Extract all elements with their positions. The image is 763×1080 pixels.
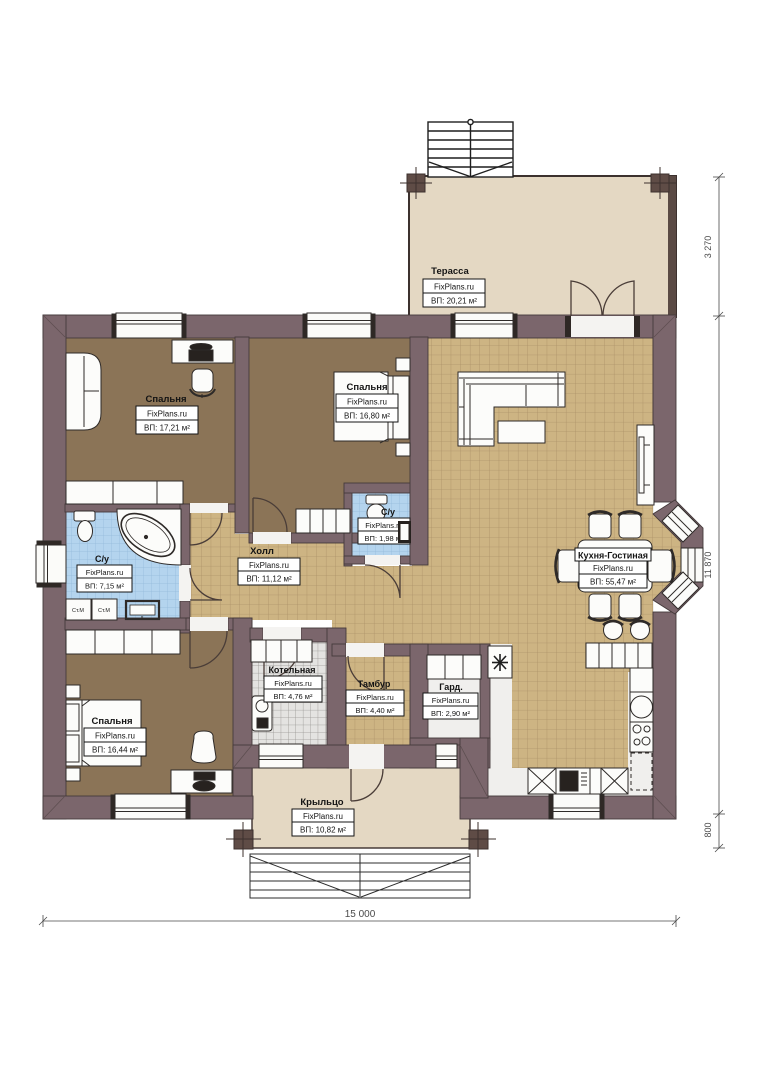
svg-text:Крыльцо: Крыльцо	[300, 797, 343, 808]
svg-text:15 000: 15 000	[345, 909, 376, 920]
svg-text:FixPlans.ru: FixPlans.ru	[356, 693, 394, 702]
svg-text:FixPlans.ru: FixPlans.ru	[593, 564, 633, 573]
svg-text:Ст.М: Ст.М	[98, 608, 110, 614]
svg-text:Спальня: Спальня	[91, 716, 132, 727]
svg-text:Спальня: Спальня	[346, 382, 387, 393]
svg-text:ВП: 2,90 м²: ВП: 2,90 м²	[431, 709, 470, 718]
svg-text:С/у: С/у	[381, 507, 395, 517]
svg-text:FixPlans.ru: FixPlans.ru	[432, 696, 470, 705]
svg-text:Спальня: Спальня	[145, 394, 186, 405]
svg-text:ВП: 55,47 м²: ВП: 55,47 м²	[590, 578, 636, 587]
svg-text:ВП: 4,40 м²: ВП: 4,40 м²	[356, 706, 395, 715]
svg-text:Холл: Холл	[250, 546, 274, 557]
svg-text:ВП: 11,12 м²: ВП: 11,12 м²	[246, 575, 292, 584]
svg-text:С/у: С/у	[95, 554, 109, 564]
svg-text:ВП: 10,82 м²: ВП: 10,82 м²	[300, 826, 346, 835]
svg-text:FixPlans.ru: FixPlans.ru	[274, 679, 312, 688]
svg-text:ВП: 16,44 м²: ВП: 16,44 м²	[92, 746, 138, 755]
svg-text:FixPlans.ru: FixPlans.ru	[365, 521, 403, 530]
svg-text:Гард.: Гард.	[439, 682, 462, 692]
svg-text:800: 800	[703, 822, 713, 837]
svg-text:Тамбур: Тамбур	[358, 679, 391, 689]
svg-text:FixPlans.ru: FixPlans.ru	[86, 568, 124, 577]
svg-text:3 270: 3 270	[703, 236, 713, 259]
svg-text:FixPlans.ru: FixPlans.ru	[434, 283, 474, 292]
svg-text:ВП: 7,15 м²: ВП: 7,15 м²	[85, 582, 124, 591]
svg-text:Терасса: Терасса	[431, 266, 469, 277]
svg-text:FixPlans.ru: FixPlans.ru	[95, 732, 135, 741]
svg-text:ВП: 20,21 м²: ВП: 20,21 м²	[431, 297, 477, 306]
svg-text:Ст.М: Ст.М	[72, 608, 84, 614]
svg-text:FixPlans.ru: FixPlans.ru	[147, 410, 187, 419]
svg-text:FixPlans.ru: FixPlans.ru	[347, 398, 387, 407]
svg-text:Кухня-Гостиная: Кухня-Гостиная	[578, 551, 648, 561]
svg-text:FixPlans.ru: FixPlans.ru	[303, 812, 343, 821]
svg-text:11 870: 11 870	[703, 552, 713, 579]
svg-text:FixPlans.ru: FixPlans.ru	[249, 561, 289, 570]
svg-text:ВП: 4,76 м²: ВП: 4,76 м²	[274, 692, 313, 701]
svg-text:Котельная: Котельная	[268, 665, 315, 675]
svg-text:ВП: 17,21 м²: ВП: 17,21 м²	[144, 424, 190, 433]
svg-text:ВП: 16,80 м²: ВП: 16,80 м²	[344, 412, 390, 421]
